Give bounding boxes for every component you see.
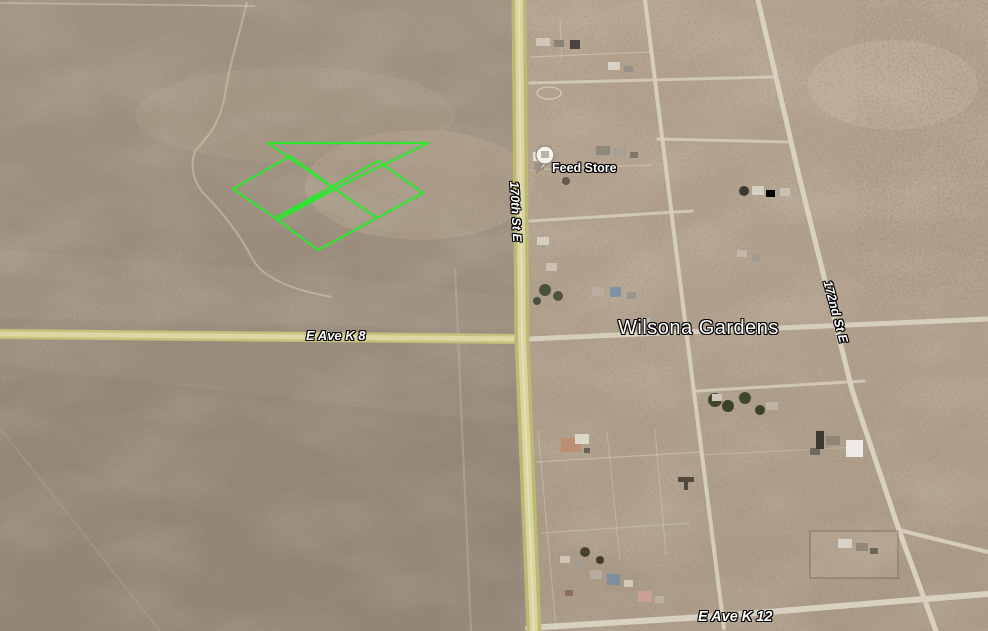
satellite-map-view[interactable]: Feed Store Wilsona Gardens E Ave K 8 E A… xyxy=(0,0,988,631)
map-render-layer xyxy=(0,0,988,631)
